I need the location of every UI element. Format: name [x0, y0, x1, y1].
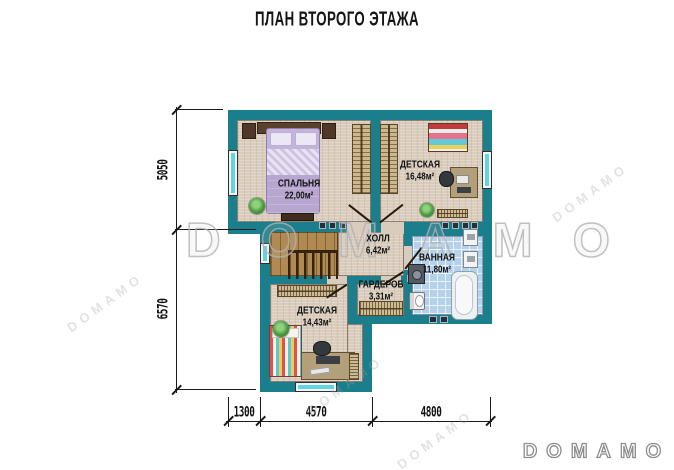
room-label-kidsroom1: ДЕТСКАЯ 16,48м² [400, 160, 440, 183]
window-icon [482, 151, 492, 189]
room-area: 14,43м² [297, 317, 337, 328]
room-name: ДЕТСКАЯ [297, 306, 337, 318]
nightstand-icon [322, 123, 336, 139]
pillow-icon [295, 132, 317, 146]
toilet-bowl [415, 295, 424, 307]
room-area: 3,31м² [358, 291, 403, 302]
room-area: 6,42м² [366, 245, 390, 256]
dimension-extension [260, 397, 261, 427]
room-name: ГАРДЕРОБ [358, 280, 403, 292]
dimension-value: 4800 [421, 404, 442, 420]
dimension-extension [490, 397, 491, 427]
window-icon [228, 150, 238, 196]
dimension-value: 1300 [234, 404, 255, 420]
bathtub-inner [455, 275, 473, 315]
pillow-icon [270, 132, 292, 146]
watermark-tile: DOMAMO [64, 270, 146, 335]
paper-icon [310, 367, 331, 376]
vent-icon [440, 316, 448, 323]
paper-icon [456, 175, 469, 184]
room-label-kidsroom2: ДЕТСКАЯ 14,43м² [297, 306, 337, 329]
bathtub-icon [451, 271, 478, 320]
chair-icon [439, 171, 454, 187]
dimension-extension [175, 109, 223, 110]
room-area: 11,80м² [419, 264, 455, 275]
room-area: 16,48м² [400, 171, 440, 182]
dimension-value: 5050 [155, 160, 171, 181]
floor-plan-canvas: ПЛАН ВТОРОГО ЭТАЖА [0, 0, 674, 470]
room-name: ДЕТСКАЯ [400, 160, 440, 172]
chair-icon [313, 341, 331, 356]
laptop-icon [457, 187, 471, 193]
room-name: ХОЛЛ [366, 234, 390, 246]
room-label-bathroom: ВАННАЯ 11,80м² [419, 253, 455, 276]
brand-logo: DOMAMO [514, 441, 670, 464]
nightstand-icon [242, 123, 256, 139]
wardrobe-closet-icon [352, 124, 371, 194]
toilet-icon [409, 292, 425, 310]
dimension-extension [175, 389, 256, 390]
dimension-extension [372, 397, 373, 427]
hanger-rail-icon [359, 301, 403, 316]
page-title: ПЛАН ВТОРОГО ЭТАЖА [255, 8, 419, 32]
room-label-hall: ХОЛЛ 6,42м² [366, 234, 390, 257]
dimension-extension [228, 397, 229, 427]
dimension-value: 6570 [155, 299, 171, 320]
plant-icon [273, 321, 289, 337]
blanket-pattern [267, 149, 319, 175]
laptop-icon [316, 356, 340, 364]
room-label-bedroom: СПАЛЬНЯ 22,00м² [278, 179, 320, 202]
kids-bed-icon [428, 123, 468, 152]
plant-icon [249, 198, 265, 214]
toilet-tank [410, 293, 414, 309]
room-name: ВАННАЯ [419, 253, 455, 265]
room-label-wardrobe: ГАРДЕРОБ 3,31м² [358, 280, 403, 303]
wardrobe-closet-icon [380, 124, 398, 194]
room-name: СПАЛЬНЯ [278, 179, 320, 191]
desk-icon [450, 167, 478, 198]
vent-icon [429, 316, 437, 323]
watermark-text: DOMAMO [146, 214, 650, 269]
room-area: 22,00м² [278, 190, 320, 201]
